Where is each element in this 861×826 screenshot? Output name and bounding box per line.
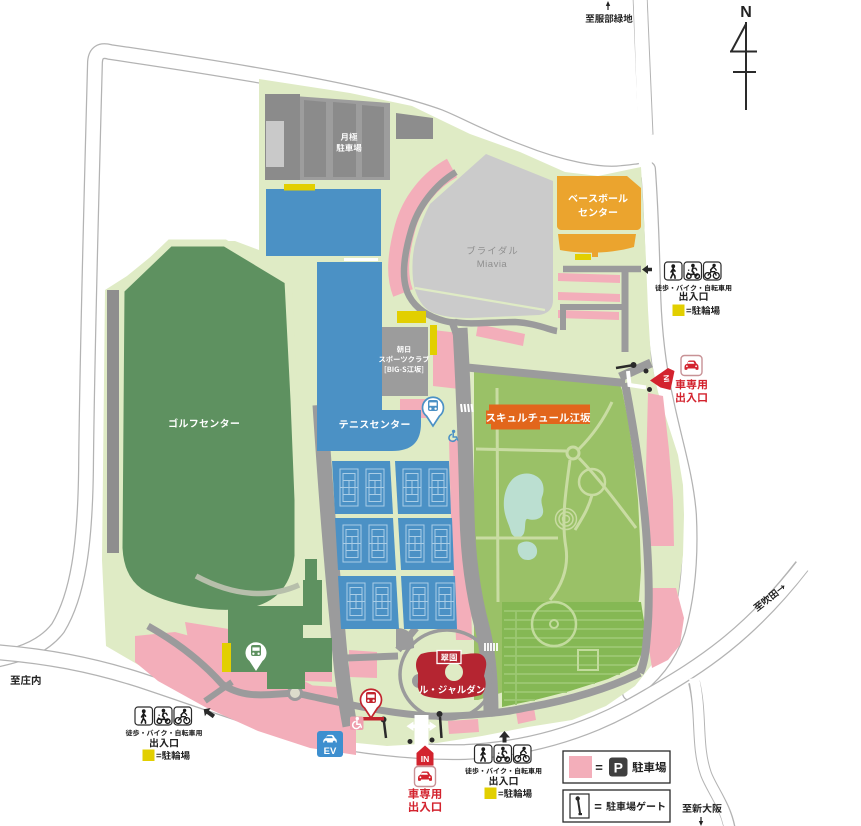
svg-text:IN: IN xyxy=(421,754,430,764)
svg-text:N: N xyxy=(740,4,752,21)
svg-text:IN: IN xyxy=(662,374,672,382)
svg-text:Miavia: Miavia xyxy=(477,259,508,270)
svg-text:P: P xyxy=(614,760,623,776)
svg-text:=: = xyxy=(595,760,603,775)
svg-text:EV: EV xyxy=(324,746,337,757)
svg-text:=: = xyxy=(594,799,602,814)
